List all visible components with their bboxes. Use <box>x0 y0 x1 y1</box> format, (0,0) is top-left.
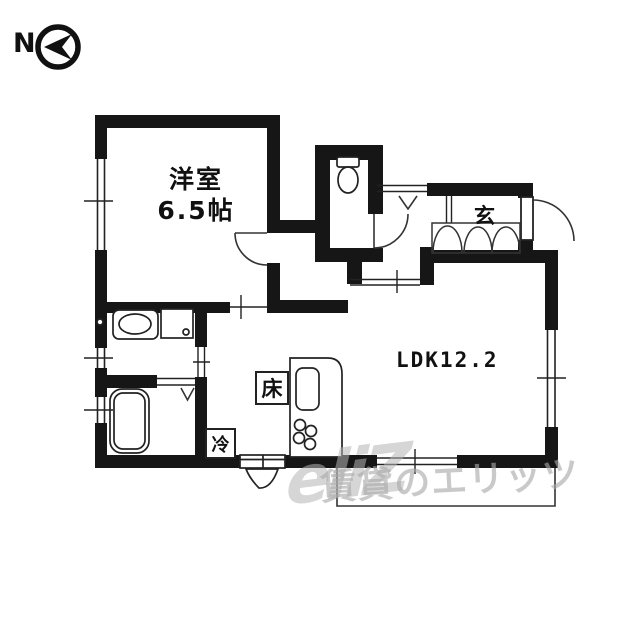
room-label-western: 洋室 6.5帖 <box>138 164 254 226</box>
floor-plan-drawing <box>0 0 640 640</box>
refrigerator-label: 冷 <box>205 428 236 459</box>
room-label-entrance: 玄 <box>474 200 495 230</box>
bathtub-icon <box>110 389 149 453</box>
toilet-icon <box>337 157 359 193</box>
western-room-door-arc <box>235 233 267 265</box>
window-ldk-bottom <box>377 458 457 465</box>
north-arrow-icon <box>38 27 78 67</box>
north-label: N <box>13 28 36 59</box>
entrance-door-arc <box>521 197 574 241</box>
doors <box>181 196 574 400</box>
hall-bifold-mark <box>399 196 417 209</box>
bathroom-door <box>157 379 195 386</box>
floor-storage-label: 床 <box>255 371 289 405</box>
window-hall-top <box>377 186 427 192</box>
closet-side-panel <box>447 196 452 223</box>
range-vent-icon <box>240 455 285 488</box>
window-western-left <box>98 159 105 250</box>
room-label-ldk: LDK12.2 <box>396 348 499 372</box>
toilet-door-arc <box>374 214 408 248</box>
floor-plan: N 洋室 6.5帖 LDK12.2 玄 床 冷 eliZ 賃貸のエリッツ <box>0 0 640 640</box>
room-size-western: 6.5帖 <box>138 195 254 226</box>
balcony-outline <box>337 468 555 506</box>
bathroom-bifold-mark <box>181 388 194 400</box>
washer-pan-icon <box>161 309 193 338</box>
room-name-western: 洋室 <box>138 164 254 195</box>
